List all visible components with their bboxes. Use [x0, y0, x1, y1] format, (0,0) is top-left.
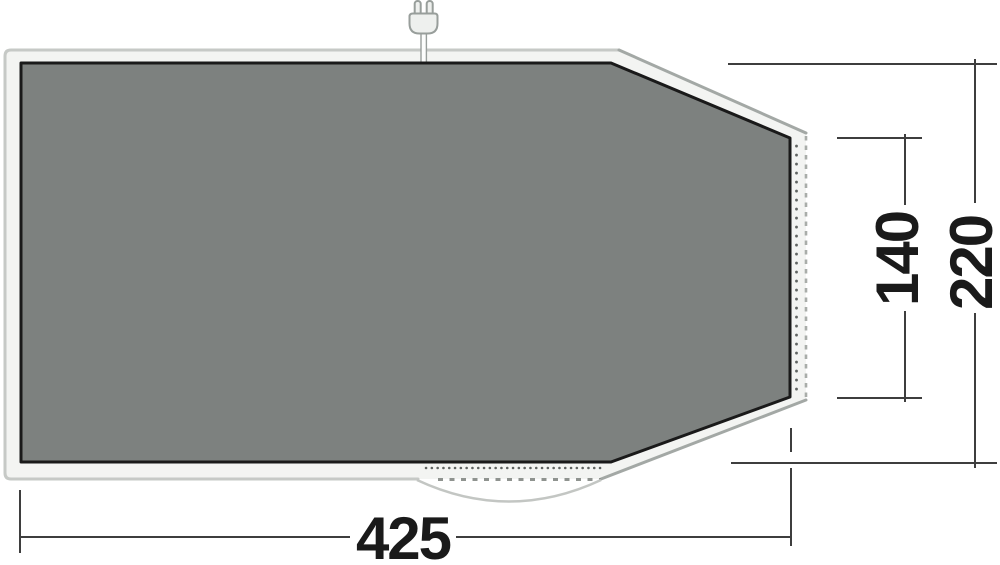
power-cable	[421, 31, 427, 62]
rear-width-label: 140	[864, 212, 931, 306]
door-swing-arc	[417, 480, 601, 502]
plug-body	[410, 14, 438, 34]
power-plug-icon	[410, 1, 438, 34]
width-label: 425	[356, 505, 451, 565]
tent-body	[5, 31, 806, 502]
tent-floorplan-page: 425 220 140	[0, 0, 1000, 565]
groundsheet	[21, 63, 790, 462]
depth-label: 220	[938, 216, 1000, 310]
dimension-rear-width: 140	[837, 134, 931, 402]
tent-floorplan-diagram: 425 220 140	[0, 0, 1000, 565]
